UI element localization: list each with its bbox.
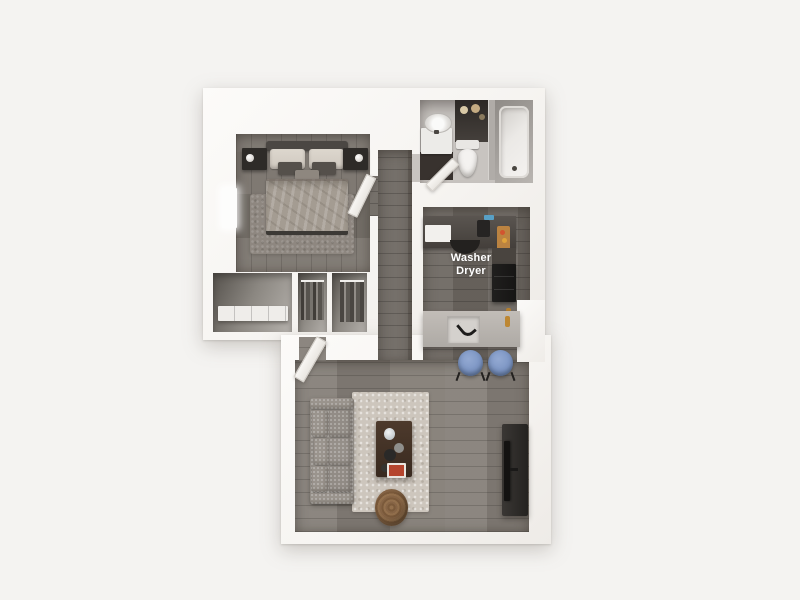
bed-footboard: [266, 231, 348, 235]
lamp-icon: [246, 154, 254, 162]
bed: [266, 141, 348, 235]
kitchen-wall-return: [517, 300, 545, 362]
tub-drain: [512, 166, 517, 171]
washer-label-line: Washer: [441, 252, 501, 265]
bottle: [505, 316, 510, 327]
dishwasher-panel: [425, 225, 451, 242]
duvet: [266, 179, 348, 233]
coffee-table: [376, 421, 412, 477]
basket: [479, 114, 485, 120]
closet-dresser: [218, 306, 288, 321]
sofa-back-cushion: [312, 466, 328, 492]
towel-roll: [471, 104, 480, 113]
sofa-back-cushion: [314, 438, 330, 465]
dryer-label-line: Dryer: [441, 265, 501, 278]
hallway-floor: [378, 150, 412, 362]
bedroom-window: [222, 188, 237, 228]
tv-mount: [510, 468, 518, 471]
nightstand-right: [343, 148, 368, 170]
small-appliance: [484, 215, 494, 220]
lamp-icon: [355, 154, 363, 162]
hanging-clothes: [340, 280, 364, 322]
sink-faucet: [434, 130, 439, 134]
sofa-seat-cushion: [329, 410, 352, 437]
bathroom-door-threshold: [412, 154, 420, 182]
appliance-seam: [494, 289, 514, 290]
washer-dryer-label: Washer Dryer: [441, 252, 501, 278]
bar-stool: [488, 350, 513, 376]
toilet-tank: [456, 140, 479, 149]
towel-roll: [460, 106, 468, 114]
book-stack: [387, 463, 406, 478]
food-item: [502, 238, 507, 243]
sofa: [310, 398, 354, 504]
sofa-seat-cushion: [329, 438, 352, 465]
floorplan: Washer Dryer: [0, 0, 800, 600]
nightstand-left: [242, 148, 267, 170]
bar-stool: [458, 350, 483, 376]
wicker-pouf: [375, 489, 408, 526]
tv-screen: [504, 441, 510, 501]
decor-tray: [394, 443, 404, 453]
sofa-armrest: [310, 493, 354, 504]
coffee-maker: [477, 220, 490, 237]
glass-vase: [384, 428, 395, 440]
food-item: [500, 230, 505, 235]
decor-tray: [384, 449, 396, 461]
sofa-seat-cushion: [329, 466, 352, 492]
hanging-clothes: [301, 280, 324, 320]
sofa-back-cushion: [312, 410, 328, 437]
sofa-armrest: [310, 398, 354, 409]
closet-left: [213, 273, 292, 332]
bathroom-accent-wall: [455, 100, 488, 142]
